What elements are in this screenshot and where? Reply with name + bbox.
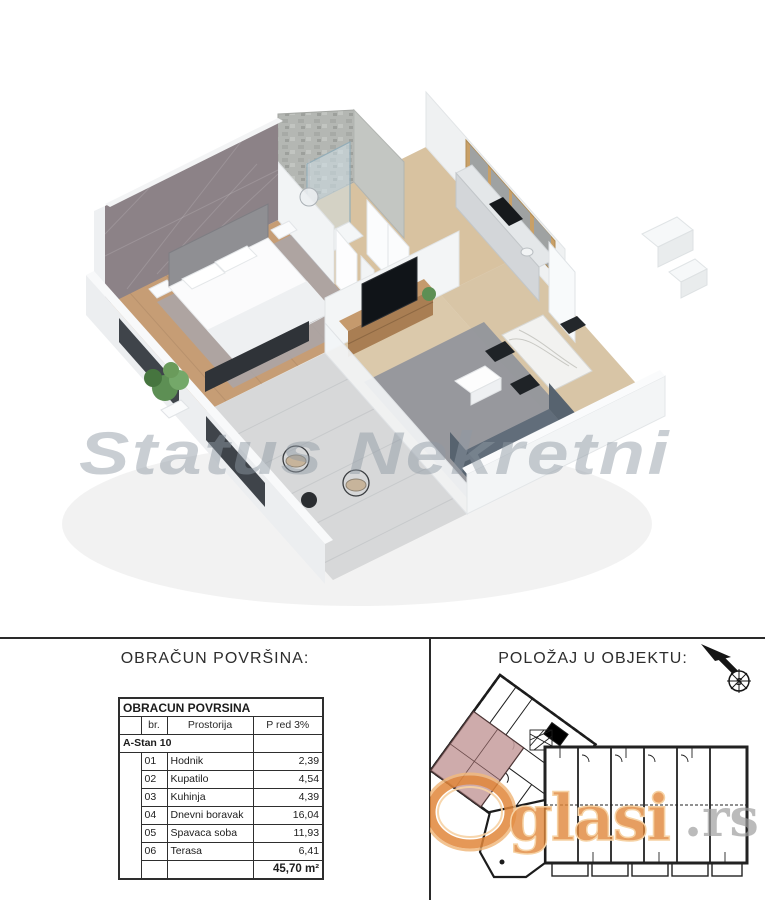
header-num: br. <box>141 717 167 735</box>
balcony-strip <box>552 863 742 876</box>
row-area: 11,93 <box>253 825 323 843</box>
row-num: 05 <box>141 825 167 843</box>
total-area: 45,70 m² <box>253 861 323 880</box>
row-room: Terasa <box>167 843 253 861</box>
table-group-row: A-Stan 10 <box>119 735 323 753</box>
areas-table: OBRACUN POVRSINA br. Prostorija P red 3%… <box>118 697 324 880</box>
render-watermark: Status Nekretni <box>79 420 671 487</box>
row-area: 4,54 <box>253 771 323 789</box>
group-empty-cell <box>253 735 323 753</box>
row-room: Hodnik <box>167 753 253 771</box>
row-room: Kuhinja <box>167 789 253 807</box>
table-row: 05 Spavaca soba 11,93 <box>119 825 323 843</box>
header-area: P red 3% <box>253 717 323 735</box>
row-area: 2,39 <box>253 753 323 771</box>
total-empty-num <box>141 861 167 880</box>
watermark-rs: .rs <box>684 788 759 849</box>
pendant-lamp <box>300 188 318 206</box>
sideboard-plant <box>422 287 436 301</box>
row-area: 6,41 <box>253 843 323 861</box>
header-room: Prostorija <box>167 717 253 735</box>
group-label: A-Stan 10 <box>119 735 253 753</box>
gutter-cell <box>119 753 141 880</box>
row-num: 06 <box>141 843 167 861</box>
table-row: 06 Terasa 6,41 <box>119 843 323 861</box>
table-title-row: OBRACUN POVRSINA <box>119 698 323 717</box>
row-area: 4,39 <box>253 789 323 807</box>
row-area: 16,04 <box>253 807 323 825</box>
table-total-row: 45,70 m² <box>119 861 323 880</box>
north-arrow-head <box>701 644 731 661</box>
table-row: 04 Dnevni boravak 16,04 <box>119 807 323 825</box>
listing-image: Status Nekretni OBRAČUN POVRŠINA: OBRACU… <box>0 0 765 900</box>
row-num: 03 <box>141 789 167 807</box>
row-num: 01 <box>141 753 167 771</box>
table-row: 03 Kuhinja 4,39 <box>119 789 323 807</box>
table-title: OBRACUN POVRSINA <box>119 698 323 717</box>
watermark-glasi: glasi <box>508 781 670 856</box>
row-num: 04 <box>141 807 167 825</box>
terrace-table <box>301 492 317 508</box>
row-room: Dnevni boravak <box>167 807 253 825</box>
row-room: Kupatilo <box>167 771 253 789</box>
row-room: Spavaca soba <box>167 825 253 843</box>
table-header-row: br. Prostorija P red 3% <box>119 717 323 735</box>
connector-detail <box>500 860 505 865</box>
panel-divider-horizontal <box>0 637 765 639</box>
apartment-3d-render: Status Nekretni <box>55 88 710 628</box>
sink <box>521 248 533 256</box>
areas-panel-title: OBRAČUN POVRŠINA: <box>0 650 430 668</box>
header-gutter <box>119 717 141 735</box>
total-empty-room <box>167 861 253 880</box>
table-row: 02 Kupatilo 4,54 <box>119 771 323 789</box>
building-plan: glasi .rs <box>430 672 765 882</box>
row-num: 02 <box>141 771 167 789</box>
table-row: 01 Hodnik 2,39 <box>119 753 323 771</box>
